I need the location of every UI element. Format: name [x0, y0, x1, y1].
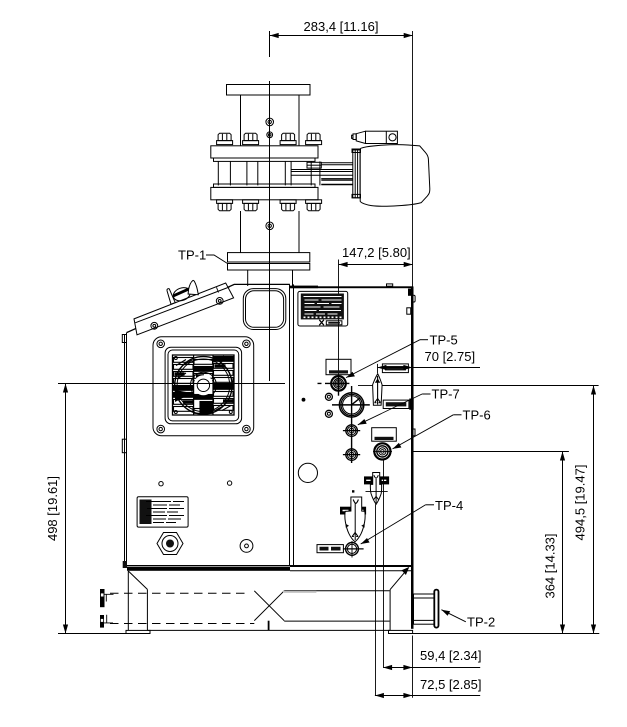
svg-text:TP-6: TP-6 [463, 408, 491, 423]
svg-text:TP-1: TP-1 [178, 248, 206, 263]
svg-text:147,2 [5.80]: 147,2 [5.80] [342, 245, 411, 260]
svg-text:70 [2.75]: 70 [2.75] [425, 349, 476, 364]
svg-text:494,5 [19.47]: 494,5 [19.47] [573, 465, 588, 541]
svg-text:TP-4: TP-4 [435, 498, 463, 513]
svg-text:TP-2: TP-2 [467, 615, 495, 630]
svg-text:TP-5: TP-5 [430, 333, 458, 348]
svg-text:72,5 [2.85]: 72,5 [2.85] [420, 677, 481, 692]
svg-text:498 [19.61]: 498 [19.61] [45, 476, 60, 541]
svg-text:364 [14.33]: 364 [14.33] [543, 533, 558, 598]
svg-text:TP-7: TP-7 [432, 387, 460, 402]
svg-text:283,4 [11.16]: 283,4 [11.16] [304, 19, 379, 34]
svg-text:59,4 [2.34]: 59,4 [2.34] [420, 648, 481, 663]
